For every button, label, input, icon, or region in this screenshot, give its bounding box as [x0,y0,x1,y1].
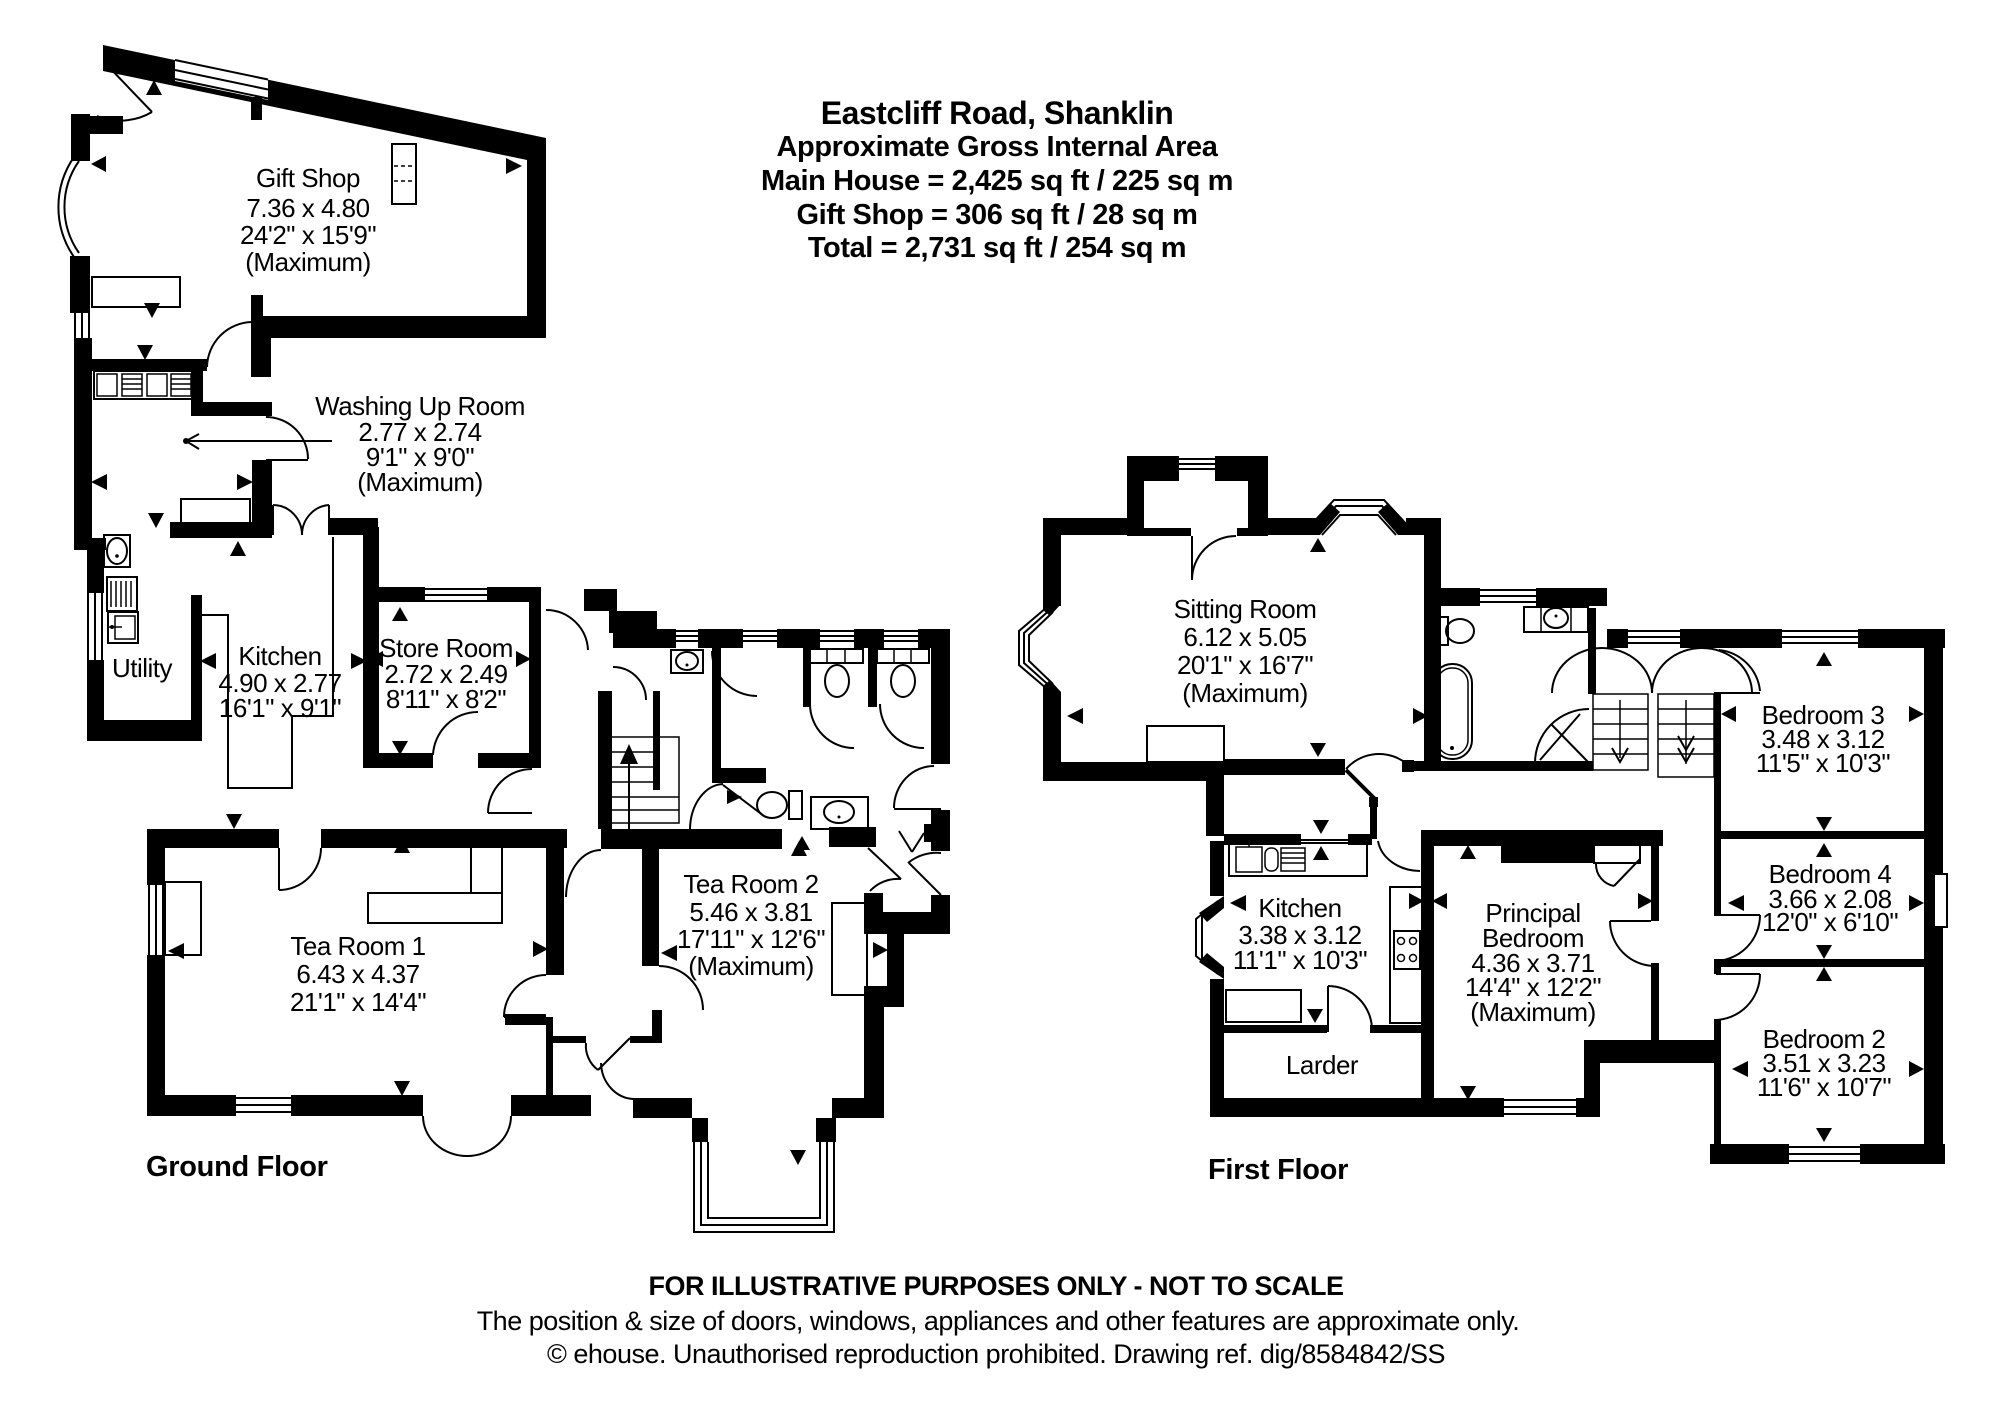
svg-text:5.46 x 3.81: 5.46 x 3.81 [689,897,812,927]
svg-text:Total = 2,731 sq ft / 254 sq m: Total = 2,731 sq ft / 254 sq m [808,232,1186,264]
svg-text:Main House = 2,425 sq ft / 225: Main House = 2,425 sq ft / 225 sq m [761,165,1233,197]
svg-text:FOR ILLUSTRATIVE PURPOSES ONLY: FOR ILLUSTRATIVE PURPOSES ONLY - NOT TO … [648,1271,1343,1301]
svg-text:11'5" x 10'3": 11'5" x 10'3" [1756,748,1890,778]
svg-text:6.43 x 4.37: 6.43 x 4.37 [296,959,419,989]
svg-text:© ehouse. Unauthorised reprodu: © ehouse. Unauthorised reproduction proh… [547,1339,1445,1369]
svg-text:Kitchen: Kitchen [238,641,321,671]
svg-text:Sitting Room: Sitting Room [1174,594,1317,624]
svg-text:Utility: Utility [112,653,173,683]
svg-text:Kitchen: Kitchen [1258,893,1341,923]
svg-text:8'11" x 8'2": 8'11" x 8'2" [386,684,506,714]
svg-text:First Floor: First Floor [1208,1154,1348,1186]
svg-text:Ground Floor: Ground Floor [146,1151,328,1183]
svg-text:7.36 x 4.80: 7.36 x 4.80 [246,193,369,223]
svg-text:Eastcliff Road, Shanklin: Eastcliff Road, Shanklin [821,95,1174,131]
svg-text:21'1" x 14'4": 21'1" x 14'4" [290,987,426,1017]
svg-text:11'1" x 10'3": 11'1" x 10'3" [1233,945,1367,975]
svg-text:(Maximum): (Maximum) [688,951,814,981]
svg-text:16'1" x 9'1": 16'1" x 9'1" [219,693,341,723]
svg-text:20'1" x 16'7": 20'1" x 16'7" [1177,650,1313,680]
svg-text:6.12 x 5.05: 6.12 x 5.05 [1183,622,1306,652]
svg-text:Tea Room 1: Tea Room 1 [290,931,425,961]
svg-text:(Maximum): (Maximum) [245,247,371,277]
svg-text:Larder: Larder [1286,1050,1359,1080]
svg-text:Gift Shop: Gift Shop [256,163,360,193]
svg-text:(Maximum): (Maximum) [1182,678,1308,708]
svg-text:The position & size of doors,: The position & size of doors, windows, a… [477,1306,1520,1336]
svg-text:24'2" x 15'9": 24'2" x 15'9" [240,220,376,250]
svg-text:Tea Room 2: Tea Room 2 [683,869,818,899]
svg-text:17'11" x 12'6": 17'11" x 12'6" [677,924,825,954]
svg-text:Approximate Gross Internal Are: Approximate Gross Internal Area [777,131,1219,163]
svg-text:Gift Shop = 306 sq ft / 28 sq: Gift Shop = 306 sq ft / 28 sq m [797,199,1198,231]
svg-text:12'0" x 6'10": 12'0" x 6'10" [1762,907,1898,937]
svg-text:(Maximum): (Maximum) [1470,997,1596,1027]
svg-text:(Maximum): (Maximum) [357,467,483,497]
svg-text:11'6" x 10'7": 11'6" x 10'7" [1757,1072,1891,1102]
